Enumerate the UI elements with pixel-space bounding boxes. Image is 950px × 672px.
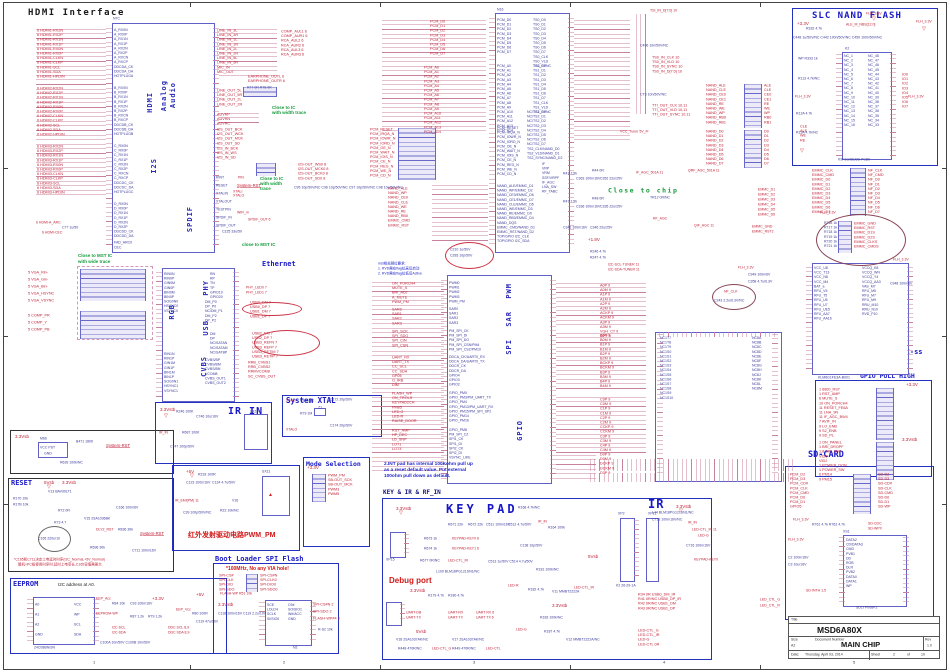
border-tick — [3, 336, 8, 337]
net-label: 6 HDMI2-HPDIN — [37, 132, 65, 137]
float-label: FLH_3.3V — [916, 20, 932, 24]
net-label: NC8M — [752, 387, 762, 392]
float-label: C511 100n/16V — [486, 523, 510, 527]
float-label: DDC SDA 8,9 — [168, 631, 189, 635]
float-label: R47 7.5k — [563, 200, 577, 204]
pin-stubs — [903, 537, 909, 603]
net-col-i2s-out: I2S_OUT_BCKI2S_OUT_WCKI2S_OUT_MCKI2S_OUT… — [217, 127, 243, 145]
float-label: R672 22k — [468, 523, 483, 527]
float-label: SX10 — [250, 410, 259, 414]
rev-value: 1.0 — [927, 644, 932, 648]
float-label: C118 100n/16V C119 2.2u/10V — [218, 612, 266, 616]
pin-col-phy1: RIN0NRIN0PGIN0MGIN0PBIN0MBIN0PSOG0N0HSYN… — [164, 272, 178, 313]
float-label: 5 — [853, 660, 855, 665]
net-label: RINT — [216, 174, 236, 182]
net-label: LED-CTL 0R — [638, 642, 659, 647]
net-col-nd-l: NAND_D0NAND_D1NAND_D2NAND_D3NAND_D4NAND_… — [706, 129, 724, 166]
float-label: VCC PST — [40, 446, 55, 450]
net-label: RESET — [216, 182, 236, 190]
net-col-boot-r: SPI-CS#NSPI-CLK0SPI-DIO0SPI-SDO0 — [260, 573, 278, 591]
net-label: FLASH-WP#4 3 — [313, 615, 340, 622]
of-label: of — [907, 653, 910, 657]
pin-col-phy-r1: RNRPTNTPGPIO19GPIO20 — [210, 272, 223, 300]
net-col-auv: AUVRPAUVRNAUVRC — [217, 112, 230, 126]
schematic-sheet: HDMI Interface SLC NAND FLASH Ethernet I… — [0, 0, 950, 672]
sheet-label: Sheet — [871, 653, 880, 657]
float-label: 2.INT pad has internal 100Kohm pull up — [384, 461, 473, 467]
float-label: PIN — [238, 176, 244, 180]
float-label: I2C-SDA — [112, 631, 126, 635]
pin-stubs — [836, 54, 842, 158]
float-label: XTALO — [286, 428, 297, 432]
pin-stubs — [489, 18, 495, 248]
float-label: C3 10u/16V — [788, 563, 806, 567]
float-label: LED_CTL_R — [760, 604, 780, 608]
float-label: KEYPAD-KEY0 6 — [452, 537, 479, 541]
pin-stubs — [93, 599, 99, 641]
float-label: EMMC_D3 — [758, 198, 775, 202]
title-block-title-row: MSD6A80X — [789, 624, 939, 637]
float-label: FLH_3.3V — [795, 95, 811, 99]
net-col-vga: 5 VGA_Rin-5 VGA_Gin-5 VGA_Bin-5 VGA_HSYN… — [28, 269, 54, 304]
net-label: A0 — [35, 600, 43, 610]
float-label: C335 22u/25V — [600, 205, 622, 209]
float-label: 3.3Vsb — [15, 434, 29, 439]
doc-number-label: Document Number — [815, 638, 844, 642]
float-label: R761 4.7k R762 4.7k — [812, 523, 845, 527]
float-label: R246 4.7k — [590, 250, 606, 254]
float-label: K2 — [845, 47, 849, 51]
float-label: CT3 10n/50V/NC — [640, 93, 667, 97]
border-tick — [190, 665, 191, 670]
net-label: IO7 — [902, 104, 908, 109]
float-label: ▽ — [872, 16, 876, 22]
section-title-ethernet: Ethernet — [262, 260, 296, 268]
net-label: 5 COMP_PR — [28, 312, 50, 319]
float-label: VCC_Tuner 5V_IF — [620, 130, 649, 134]
float-label: QIF_AGC 11 — [694, 224, 714, 228]
float-label: 3.3Vstb — [218, 602, 233, 607]
float-label: CEC — [114, 246, 121, 250]
float-label: R179 4.7k — [428, 594, 444, 598]
float-label: 5Vsb — [588, 554, 598, 559]
float-label: FLH_3.3V — [788, 538, 804, 542]
net-col-comp-video: 5 COMP_PR5 COMP_Y5 COMP_PB — [28, 312, 50, 333]
net-label: RE — [800, 138, 807, 143]
pin-stubs — [233, 272, 239, 398]
net-label: 9 SD_PL — [819, 433, 848, 438]
net-label: VSYNC1 — [164, 389, 178, 394]
float-label: C123 100n/16V — [186, 481, 210, 485]
highlight-ellipse — [38, 526, 71, 552]
float-label: ▽ — [47, 484, 51, 490]
pin-col-boot-l: SCELDLD4SCLKSI/SIO0 — [267, 603, 279, 621]
float-label: 3.3Vstb — [410, 588, 425, 593]
float-label: WP R333 1k — [798, 57, 818, 61]
pin-stubs — [806, 267, 812, 369]
net-label: VSYNC_LIKE — [449, 456, 471, 461]
section-title-hdmi-interface: HDMI Interface — [28, 8, 125, 18]
net-label: SPI_CSN — [392, 343, 408, 348]
sheet-total: 10 — [921, 653, 925, 657]
float-label: +5V — [196, 592, 204, 597]
net-col-mc3: SPI_SCKSPI_SDOSPI_CINSPI_CSN — [392, 329, 408, 347]
pin-stubs — [259, 602, 265, 642]
pin-col-nand-mix: NAND_ALE/EMMC_D1NAND_WP/EMMC_D2NAND_CE0/… — [497, 184, 535, 244]
float-label: with wide trace — [78, 259, 110, 264]
float-label: 3.3Vstb — [552, 603, 567, 608]
net-label: 5 COMP_PB — [28, 326, 50, 333]
net-col-mc6: RST_AMPHP_DECLD_SNPLOT1LOT3 — [392, 428, 410, 451]
net-label: DDCDD_DA — [114, 234, 133, 239]
float-label: R639 100k/NC — [60, 461, 83, 465]
float-label: EMMC_D4 — [758, 203, 775, 207]
float-label: EMMC_RST2 — [752, 230, 774, 234]
float-label: C352 22u/25V — [600, 177, 622, 181]
float-label: QRF_AGC_501A 11 — [688, 169, 719, 173]
float-label: EEP_Acc — [96, 597, 111, 601]
net-label: PCM_A14 — [424, 129, 441, 134]
float-label: ▽ — [679, 508, 683, 514]
border-tick — [942, 504, 947, 505]
pin-col-eeprom-l: A0A1A2GND — [35, 600, 43, 640]
net-col-lvds-d: D0P 9D0M 9DCKP 9DCKM 9D3P 9 — [600, 452, 614, 475]
float-label: LED-CTL — [486, 647, 501, 651]
net-col-lineout: LINE_OUT_5LLINE_OUT_5RLINE_OUT_2LLINE_OU… — [217, 88, 242, 106]
float-label: V13 BAV99LT1 — [48, 490, 72, 494]
net-label: SPDIF_IN — [216, 214, 236, 222]
net-label: VCC — [74, 600, 81, 610]
pin-col-emmc-l: VCC_U8VCC_T13VCC_N8VCC_M4BAT_aRFU_V5RFU_… — [814, 266, 832, 321]
border-tick — [380, 665, 381, 670]
float-label: V15 2SA1036BK — [84, 517, 110, 521]
float-label: N7C — [113, 17, 120, 21]
pin-col-phy-r2: DM_P0DP_P0NC/DM_P1DM_P2DP_P2 — [205, 300, 223, 323]
float-label: C95 10p/50V/NC C96 10p/50V/NC C97 10p/50… — [294, 186, 403, 190]
float-label: R-S2 10k — [318, 628, 333, 632]
float-label: LED-CTL_G — [432, 647, 451, 651]
float-label: L100 BLM18PG121SN1/NC — [436, 570, 480, 574]
net-col-mc1: ON_PORCH4MUTE_SBRI_ADJA_MUTEPWM_PM — [392, 281, 415, 304]
net-label: 5 VGA_Gin- — [28, 276, 54, 283]
pin-stubs — [839, 537, 845, 603]
float-label: C39 100p/50V/NC — [183, 511, 211, 515]
net-label: WP — [846, 584, 863, 589]
resistor-array — [246, 574, 258, 592]
float-label: ALE_M_NBS[12:0] — [846, 23, 875, 27]
net-col-i2s-in: I2S_IN_BCKI2S_IN_WSI2S_IN_SD — [217, 146, 238, 160]
float-label: IR_IN — [538, 520, 547, 524]
resistor-array — [850, 168, 866, 216]
net-col-boot-l: SPI-CS#SPI-CLKSPI-DIOSPI-SDO — [219, 573, 234, 591]
pin-col-mc5: GPIO_PM0GPIO_PM3/PM_UART_TXGPIO_PM4GPIO_… — [449, 391, 493, 423]
float-label: FAD_ARC0 — [114, 241, 132, 245]
pin-stubs — [441, 280, 447, 480]
pin-stubs — [634, 520, 639, 578]
highlight-ellipse — [712, 284, 756, 310]
float-label: R233 100R — [198, 473, 216, 477]
float-label: UART-TX — [406, 616, 421, 620]
pin-stubs — [772, 334, 778, 476]
pin-col-emmc-r: VCCQ_K8VCCQ_WNVCCQ_Y4VCCQ_AA3VAS_M7RFU_M… — [862, 266, 881, 317]
net-label: AUVRC — [217, 121, 230, 126]
pin-col-phy-r4: CVBS/BPCVBS/BMCVBS/BNVCOM8CVBS_OUT1CVBS_… — [205, 358, 226, 386]
net-label: XTALOUT — [216, 198, 236, 206]
vlabel-analog: Analog — [160, 80, 168, 111]
float-label: C948 100n/6V — [890, 282, 912, 286]
float-label: R812 1R — [300, 399, 314, 403]
pin-stubs — [156, 272, 162, 398]
net-col-pcm-ctl: PCM_RESETPCM_IRQA_NPCM_IOWR_NPCM_IORD_NP… — [370, 127, 395, 178]
float-label: 3.3Vsb — [62, 480, 76, 485]
float-label: R836 30k — [118, 528, 133, 532]
net-col-mc2: SAR0SAR1SAR2SAR3 — [392, 307, 402, 325]
net-label: 6 HDMI1-HPDIN — [37, 74, 65, 79]
title-label: Title — [791, 618, 797, 622]
float-label: ▽ — [190, 473, 194, 479]
float-label: V18 2SA1037AK/NC — [396, 638, 428, 642]
float-label: EEP_Vcc — [176, 608, 191, 612]
title-block-date-row: Date: Thursday, April 03, 2014 Sheet 2 o… — [789, 651, 939, 660]
float-label: R180 4.7k — [448, 594, 464, 598]
float-label: R183 100k/NC — [540, 616, 563, 620]
float-label: XTALI — [233, 190, 242, 194]
float-label: R448 470R/NC — [398, 647, 422, 651]
net-label: SAR3 — [392, 321, 402, 326]
float-label: V11 MMBT2222A — [552, 590, 579, 594]
float-label: R677 0R/NC — [420, 559, 440, 563]
float-label: 3.3Vstb — [902, 437, 917, 442]
pin-col-phy-r3: DMDPNC/SATANNC/SATAMNC/SATBP — [210, 332, 228, 355]
net-label: PWM_PM — [392, 299, 415, 304]
net-label: 5 VGA_Rin- — [28, 269, 54, 276]
float-label: ▽ — [922, 26, 926, 32]
float-label: System-RST — [140, 531, 164, 536]
pin-stubs — [400, 604, 405, 622]
net-label: R43 0R/NC USB1_DP — [638, 606, 681, 611]
float-label: K9F1G08U0B-PCB0 — [838, 158, 870, 162]
net-label: WP — [74, 610, 81, 620]
float-label: ▽ — [399, 510, 403, 516]
float-label: KLM8G1FE3A-B001 — [818, 376, 850, 380]
float-label: R41 7.5k — [563, 172, 577, 176]
net-col-ir-led: LED-CTL_GLED-CTL_IRLED-GLED-CTL 0R — [638, 628, 659, 646]
resistor-array — [80, 269, 146, 301]
float-label: B471 180K — [76, 440, 93, 444]
net-col-audio-in: LINE_IN_3LLINE_IN_3RLINE_IN_1LLINE_IN_1R… — [217, 28, 238, 74]
net-label: TESTPIN — [216, 206, 236, 214]
float-label: FLH_3.3V — [820, 211, 836, 215]
float-label: IR_IN — [688, 521, 697, 525]
net-label: PCM_D7 — [430, 51, 445, 56]
net-label: TS0_IN_D[7:0] 10 — [652, 69, 682, 74]
float-label: SX11 — [262, 470, 270, 474]
float-label: R84 10k — [112, 602, 125, 606]
float-label: C124 4.7u/50V — [212, 481, 235, 485]
float-label: as a reset default value. Put external — [384, 467, 466, 473]
float-label: 整机+PC板使用时序时,延时上电变长,C165容值需更大. — [18, 562, 103, 567]
net-label: DP_P2 — [205, 318, 223, 323]
float-label: +1.8V — [588, 237, 600, 242]
net-label: HOTPLUGC — [114, 190, 133, 195]
size-value: A2 — [791, 644, 795, 648]
float-label: V12 MMBT2222A/NC — [566, 638, 600, 642]
net-col-comp: COMP_AUL1 6COMP_AUR1 6RCA_AUL2 6RCA_AUR2… — [281, 29, 307, 57]
box-mode-selection — [303, 457, 370, 547]
float-label: SD-INTH 1,5 — [806, 589, 826, 593]
float-label: LED-G — [698, 534, 709, 538]
net-col-ir-usb: R34 0R USB0_DM_IRR41 0R/NC USB0_DP_IRR42… — [638, 592, 681, 610]
float-label: XP12 — [648, 512, 657, 516]
net-label: SPDIF_OUT — [216, 222, 236, 230]
vlabel-pwm: PWM — [505, 283, 513, 299]
float-label: R22 10k/NC — [220, 509, 239, 513]
float-label: C496 10n/50V/NC — [640, 44, 668, 48]
pin-col-tail: RINTRESETXTALINXTALOUTTESTPINSPDIF_INSPD… — [216, 174, 236, 230]
float-label: LED-CTL_IR — [448, 559, 468, 563]
float-label: R87 1.2k — [130, 615, 144, 619]
float-label: trace — [260, 186, 271, 191]
float-label: 100ohm pull down as default. — [384, 473, 450, 479]
float-label: C100A 10n/50V C100B 10n/50V — [100, 641, 150, 645]
float-label: FLH_3.3V — [893, 258, 909, 262]
wire-bundle — [574, 20, 630, 140]
border-tick — [760, 665, 761, 670]
float-label: R674 1k — [424, 547, 437, 551]
float-label: R246 100K — [176, 410, 194, 414]
net-col-earphone: EARPHONE_OUTL 6EARPHONE_OUTR 6 — [248, 74, 285, 83]
pin-col-phy2: RIN1NRIN1PGIN1MGIN1PBIN1MBIN1PSOG0N1HSYN… — [164, 352, 178, 393]
float-label: FLH_3.3V — [793, 518, 809, 522]
float-label: ▽ — [800, 148, 804, 154]
float-label: KEYPAD-KEY1 6 — [452, 547, 479, 551]
vlabel-sar: SAR — [505, 311, 513, 327]
net-col-lvds-c: C0P 9C0M 9C1P 9C1M 9C2P 9C2M 9CCKP 9CCKM… — [600, 397, 614, 452]
float-label: R113 4.7k/NC — [798, 77, 820, 81]
pin-col-c: C_RX0NC_RX0PC_RX1NC_RX1PC_RX2NC_RX2PC_RX… — [114, 144, 133, 195]
float-label: 6 HDMI-A_ARC — [36, 221, 61, 225]
float-label: R687 100K — [182, 431, 200, 435]
net-col-tsout: TTI_OUT_CLK 10,11TTI_OUT_VLD 10,11TTI_OU… — [652, 103, 690, 117]
float-label: 3.3Vstb — [160, 407, 175, 412]
net-label: CVBS_OUT2 — [205, 381, 226, 386]
float-label: C746 10u/16V — [196, 415, 218, 419]
net-label: RVD_P10 — [862, 312, 881, 317]
float-label: with width trace — [272, 110, 306, 115]
pin-col-bga-l: NC1T7NC1T8NC1T9NC1S0NC1S1NC1S2NC1S3NC1S4… — [660, 336, 673, 400]
net-col-hdmi3: 6 HDMI3-RX2N6 HDMI3-RX2P6 HDMI3-RX1N6 HD… — [37, 144, 65, 195]
float-label: 24C08BN/SN — [34, 646, 55, 650]
float-label: R80 100R — [192, 612, 208, 616]
net-label: SCL — [74, 620, 81, 630]
pin-stubs — [890, 54, 896, 158]
float-label: Z1 — [318, 406, 322, 410]
resistor-array — [398, 128, 436, 180]
float-label: N16 — [497, 8, 503, 12]
pin-col-mc2: SAR0SAR1SAR2SAR3 — [449, 307, 458, 325]
float-label: I2C-SCL — [112, 626, 125, 630]
float-label: C119 47u/16V — [196, 620, 218, 624]
net-label: D3P 9 — [600, 470, 614, 475]
float-label: R170 10k — [13, 497, 28, 501]
float-label: LED-CTL_IR 11 — [692, 528, 717, 532]
float-label: UART-TX — [448, 616, 463, 620]
divider — [923, 637, 924, 650]
float-label: L44 BLM18PG121SN1/NC — [652, 511, 694, 515]
float-label: EMMC_D1 — [758, 188, 775, 192]
pin-col-sd: DATA2CD/DATA3CMDPVB1DDROBDLRPVB2DATA0DAT… — [846, 538, 863, 589]
float-label: C2 100n/16V — [788, 556, 808, 560]
net-col-lvds-a: A0P 9A0M 9A1P 9A1M 9A2P 9A2M 9ACKP 9ACKM… — [600, 283, 618, 338]
net-label: TOP/GPIO I2C_SDA — [497, 239, 535, 244]
vlabel-spi: SPI — [505, 339, 513, 355]
float-label: PHY_LED1 7 — [246, 291, 267, 295]
float-label: DDC SCL 8,9 — [168, 626, 189, 630]
pin-col-mc3: PM_SPI_CKPM_SPI_DIPM_SPI_DOPM_SPI_CSN/PM… — [449, 329, 481, 352]
float-label: R48 0R — [592, 197, 604, 201]
sheet-number: 2 — [893, 653, 895, 657]
rev-label: Rev — [925, 638, 931, 642]
pin-col-pcm-d: PCM_D0PCM_D1PCM_D2PCM_D3PCM_D4PCM_D5PCM_… — [497, 18, 511, 55]
float-label: FLASH-WP R51 10k — [220, 592, 252, 596]
net-col-gpio2: 1 ON_PANEL1 BRI_DROPF1,8 BRI_ADJVID1VID2… — [819, 440, 847, 481]
pin-stubs — [106, 28, 112, 246]
vlabel-spdif: SPDIF — [186, 206, 194, 232]
float-label: FLH_3.3V — [738, 266, 754, 270]
float-label: R72 0R — [58, 509, 70, 513]
float-label: R673 1k — [424, 537, 437, 541]
float-label: +3.3V — [307, 465, 319, 470]
float-label: UART RX 6 — [476, 611, 494, 615]
net-label: HOTPLUGA — [114, 74, 133, 79]
net-col-hdmi1: 6 HDMI1-RX2N6 HDMI1-RX2P6 HDMI1-RX1N6 HD… — [37, 28, 65, 79]
net-label: NC_16 — [844, 123, 855, 128]
net-col-sd-r: SD-D2SD-D3SD-CD#SD-CLKSD-CMDSD-D0SD-D1SD… — [878, 472, 893, 509]
net-label: B4M 9 — [600, 384, 614, 389]
title-block-doc-row: Size A2 Document Number MAIN CHIP Rev 1.… — [789, 637, 939, 651]
float-label: +3.3V — [152, 596, 164, 601]
net-label: 9 PM15 — [819, 477, 847, 482]
resistor-array — [853, 474, 871, 514]
chip-reset-supervisor — [38, 442, 68, 458]
float-label: 4 — [663, 660, 665, 665]
float-label: +3.3V — [797, 21, 809, 26]
float-label: IF_AGC_501A 11 — [636, 171, 663, 175]
float-label: RF_AGC — [653, 217, 667, 221]
float-label: I2C address at A0. — [58, 582, 95, 587]
border-tick — [190, 2, 191, 7]
float-label: TSI_IN_D[7:0] 10 — [650, 9, 677, 13]
vlabel-hdmi: HDMI — [146, 92, 154, 113]
box-reset-supervisor — [10, 430, 174, 474]
pin-col-d: D_RX0ND_RX0PD_RX1ND_RX1PD_RX2ND_RX2PDDCD… — [114, 202, 133, 239]
date-label: Date: — [791, 653, 799, 657]
vlabel-i2s: I2S — [150, 158, 158, 174]
pin-stubs — [659, 471, 773, 477]
float-label: R12A 4.7k — [796, 112, 812, 116]
float-label: R77 0R R78 0R — [247, 86, 272, 90]
net-label: I2S_IN_SD — [217, 155, 238, 160]
doc-number-value: MAIN CHIP — [841, 640, 880, 649]
vlabel-phy: PHY — [202, 280, 210, 296]
net-label: RB1 — [764, 120, 771, 125]
net-col-hdmi2: 6 HDMI2-RX2N6 HDMI2-RX2P6 HDMI2-RX1N6 HD… — [37, 86, 65, 137]
net-label: NC_33 — [868, 123, 879, 128]
float-label: EMMC_D2 — [758, 193, 775, 197]
net-label: SI/SIO0 — [267, 617, 279, 622]
float-label: R181 100k/NC — [536, 568, 559, 572]
float-label: R79 1M — [300, 412, 312, 416]
